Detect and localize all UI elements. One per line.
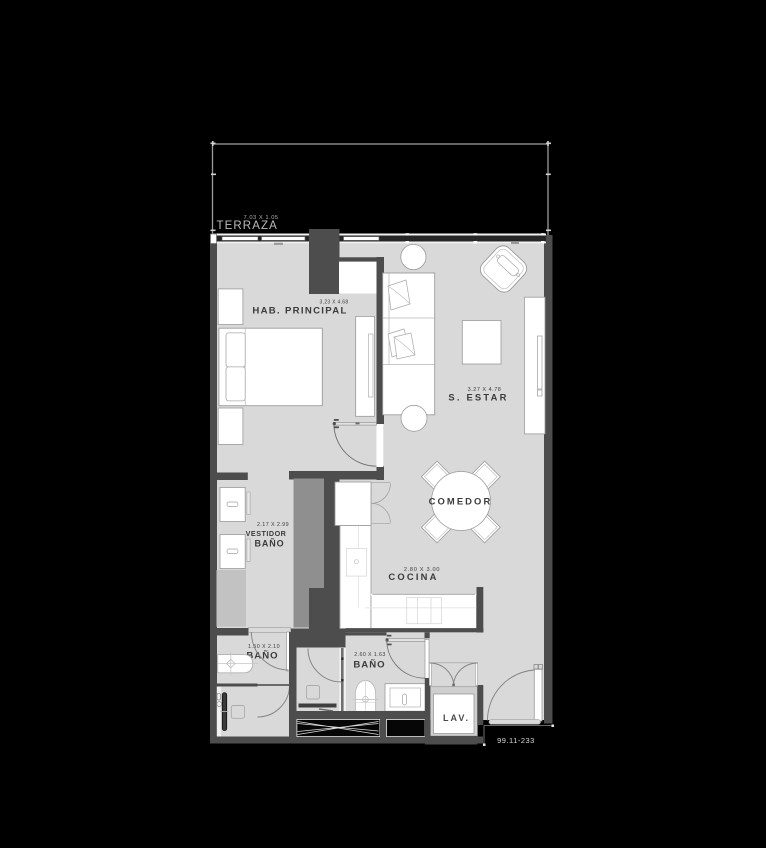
svg-text:LAV.: LAV. [443,713,470,723]
svg-text:TERRAZA: TERRAZA [217,220,278,232]
svg-text:VESTIDOR: VESTIDOR [246,529,287,538]
svg-text:HAB. PRINCIPAL: HAB. PRINCIPAL [252,306,347,317]
svg-text:1.50 X 2.10: 1.50 X 2.10 [248,644,280,650]
svg-text:7.03 X 1.05: 7.03 X 1.05 [244,215,279,221]
svg-text:S. ESTAR: S. ESTAR [448,392,508,403]
svg-text:BAÑO: BAÑO [353,660,385,671]
svg-text:3.27 X 4.78: 3.27 X 4.78 [468,387,502,393]
svg-text:2.60 X 1.63: 2.60 X 1.63 [354,652,386,658]
svg-text:3.23 X 4.68: 3.23 X 4.68 [320,300,349,306]
svg-text:2.80 X 3.00: 2.80 X 3.00 [404,567,440,573]
svg-text:BAÑO: BAÑO [254,539,284,549]
svg-text:COMEDOR: COMEDOR [429,496,493,507]
svg-text:2.17 X 2.99: 2.17 X 2.99 [257,522,289,528]
svg-text:99.11-233: 99.11-233 [497,736,535,745]
